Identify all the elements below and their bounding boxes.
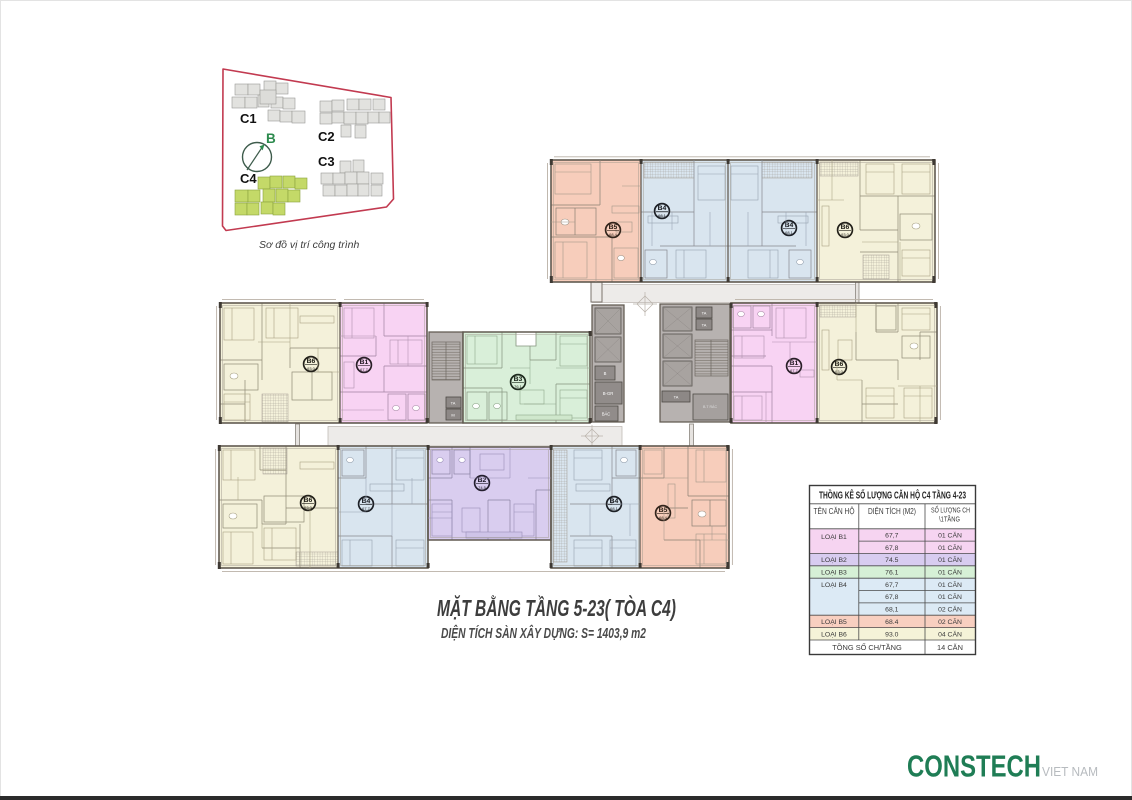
svg-text:93.0: 93.0 — [841, 232, 850, 237]
svg-text:68.4: 68.4 — [885, 619, 898, 626]
svg-text:SỐ LƯỢNG CH: SỐ LƯỢNG CH — [931, 505, 970, 515]
svg-text:TỒNG SỐ CH/TẦNG: TỒNG SỐ CH/TẦNG — [832, 642, 902, 652]
svg-text:01 CĂN: 01 CĂN — [938, 592, 962, 601]
svg-text:01 CĂN: 01 CĂN — [938, 555, 962, 564]
svg-text:B-GR: B-GR — [603, 391, 613, 396]
svg-text:LOẠI B5: LOẠI B5 — [821, 619, 847, 626]
svg-text:LOẠI B6: LOẠI B6 — [821, 631, 847, 638]
svg-text:VIET NAM: VIET NAM — [1042, 765, 1098, 779]
svg-text:C3: C3 — [318, 154, 335, 169]
svg-text:B1: B1 — [360, 359, 369, 366]
svg-text:BÁC: BÁC — [602, 412, 611, 417]
svg-text:67,7: 67,7 — [885, 582, 898, 589]
svg-text:C1: C1 — [240, 111, 257, 126]
svg-text:THỒNG KÊ SỐ LƯỢNG CĂN HỘ C4 TẦ: THỒNG KÊ SỐ LƯỢNG CĂN HỘ C4 TẦNG 4-23 — [819, 488, 966, 502]
svg-text:B3: B3 — [514, 376, 523, 383]
svg-text:Sơ đồ vị trí công trình: Sơ đồ vị trí công trình — [259, 239, 359, 251]
svg-text:67,7: 67,7 — [885, 533, 898, 540]
svg-text:TA: TA — [702, 311, 707, 316]
svg-text:68.1: 68.1 — [658, 213, 667, 218]
svg-text:LOẠI B2: LOẠI B2 — [821, 557, 847, 564]
svg-text:68.4: 68.4 — [659, 515, 668, 520]
svg-text:01 CĂN: 01 CĂN — [938, 568, 962, 577]
svg-text:B: B — [266, 131, 276, 146]
svg-text:C4: C4 — [240, 171, 257, 186]
svg-text:M: M — [451, 413, 454, 418]
svg-text:TA: TA — [702, 323, 707, 328]
svg-text:TÊN CĂN HỘ: TÊN CĂN HỘ — [814, 507, 855, 516]
svg-text:93.0: 93.0 — [307, 366, 316, 371]
svg-text:01 CĂN: 01 CĂN — [938, 543, 962, 552]
svg-text:DIỆN TÍCH SÀN XÂY DỰNG: S= 140: DIỆN TÍCH SÀN XÂY DỰNG: S= 1403,9 m2 — [441, 624, 646, 642]
svg-text:LOẠI B4: LOẠI B4 — [821, 582, 847, 589]
svg-text:TA: TA — [451, 401, 456, 406]
svg-text:74.5: 74.5 — [478, 485, 487, 490]
svg-text:LOẠI B3: LOẠI B3 — [821, 570, 847, 577]
svg-text:68,1: 68,1 — [885, 607, 898, 614]
svg-text:B1: B1 — [790, 360, 799, 367]
svg-text:68.4: 68.4 — [609, 232, 618, 237]
svg-text:C2: C2 — [318, 129, 335, 144]
svg-text:B5: B5 — [659, 507, 668, 514]
svg-text:67.7: 67.7 — [362, 506, 371, 511]
svg-text:B6: B6 — [841, 224, 850, 231]
svg-text:DIỆN TÍCH (M2): DIỆN TÍCH (M2) — [868, 507, 916, 516]
svg-text:93.0: 93.0 — [304, 505, 313, 510]
svg-text:TA: TA — [674, 395, 679, 400]
svg-text:14 CĂN: 14 CĂN — [937, 643, 963, 652]
svg-text:02 CĂN: 02 CĂN — [938, 617, 962, 626]
svg-text:93.0: 93.0 — [835, 369, 844, 374]
svg-text:74.5: 74.5 — [885, 557, 898, 564]
svg-text:01 CĂN: 01 CĂN — [938, 580, 962, 589]
svg-text:04 CĂN: 04 CĂN — [938, 629, 962, 638]
svg-text:01 CĂN: 01 CĂN — [938, 531, 962, 540]
svg-text:76.1: 76.1 — [514, 384, 523, 389]
svg-text:67.7: 67.7 — [790, 368, 799, 373]
svg-text:68.1: 68.1 — [785, 230, 794, 235]
svg-text:B6: B6 — [307, 358, 316, 365]
svg-text:67,8: 67,8 — [885, 545, 898, 552]
svg-text:67,8: 67,8 — [885, 594, 898, 601]
svg-text:B: B — [604, 371, 607, 376]
svg-text:B6: B6 — [304, 497, 313, 504]
svg-text:B.T RÁC: B.T RÁC — [703, 405, 718, 409]
svg-text:B6: B6 — [835, 361, 844, 368]
svg-text:\1TẦNG: \1TẦNG — [939, 514, 960, 524]
svg-text:B4: B4 — [658, 205, 667, 212]
svg-text:MẶT BẰNG TẦNG 5-23( TÒA C4): MẶT BẰNG TẦNG 5-23( TÒA C4) — [437, 594, 676, 621]
svg-text:CONSTECH: CONSTECH — [907, 750, 1041, 784]
svg-text:76.1: 76.1 — [885, 570, 898, 577]
svg-text:93.0: 93.0 — [885, 631, 898, 638]
svg-text:67.7: 67.7 — [360, 367, 369, 372]
svg-text:B5: B5 — [609, 224, 618, 231]
svg-text:LOẠI B1: LOẠI B1 — [821, 534, 847, 541]
svg-text:02 CĂN: 02 CĂN — [938, 605, 962, 614]
svg-text:68.1: 68.1 — [610, 506, 619, 511]
